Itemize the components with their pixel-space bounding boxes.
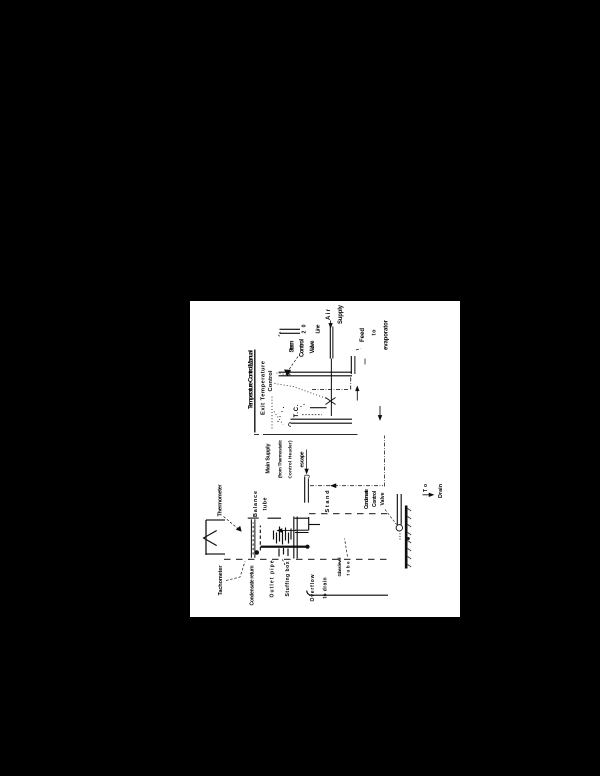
svg-text:To: To (423, 484, 429, 492)
svg-text:Balance: Balance (253, 491, 259, 517)
svg-text:tube: tube (346, 561, 351, 575)
svg-text:Feed: Feed (360, 328, 366, 342)
svg-text:Tachometer: Tachometer (218, 565, 224, 596)
svg-text:Control: Control (300, 339, 306, 357)
svg-text:Line: Line (316, 324, 322, 333)
svg-text:Condensate: Condensate (364, 489, 370, 509)
svg-text:Supply: Supply (338, 304, 344, 324)
svg-text:20: 20 (302, 324, 308, 333)
svg-text:Steam: Steam (290, 341, 296, 353)
svg-text:Outlet pipe: Outlet pipe (270, 560, 276, 597)
svg-text:Stand: Stand (325, 490, 331, 513)
svg-text:Valve: Valve (310, 340, 316, 354)
svg-text:to: to (372, 329, 378, 336)
svg-text:Drain: Drain (438, 484, 444, 498)
svg-text:Air: Air (326, 308, 332, 320)
svg-text:Valve: Valve (380, 492, 386, 505)
svg-text:Exit Temperature: Exit Temperature (261, 360, 267, 415)
svg-text:escape: escape (300, 452, 306, 468)
svg-text:Main Supply: Main Supply (266, 444, 272, 474)
svg-text:evaporator: evaporator (384, 319, 390, 350)
svg-text:tube: tube (263, 498, 269, 511)
svg-text:Glass level: Glass level (337, 558, 342, 577)
svg-text:T.C.: T.C. (294, 404, 300, 417)
svg-text:Thermometer: Thermometer (218, 484, 224, 517)
svg-text:Overflow: Overflow (310, 574, 316, 601)
svg-text:(from Thermostatic: (from Thermostatic (278, 440, 283, 478)
svg-text:Control: Control (268, 370, 274, 391)
svg-text:Condensate return: Condensate return (250, 566, 256, 606)
svg-text:Stuffing box: Stuffing box (285, 561, 291, 596)
svg-text:Temperature Control Manual: Temperature Control Manual (248, 350, 255, 409)
svg-text:Control: Control (372, 490, 378, 507)
svg-text:Control Header): Control Header) (288, 440, 293, 478)
